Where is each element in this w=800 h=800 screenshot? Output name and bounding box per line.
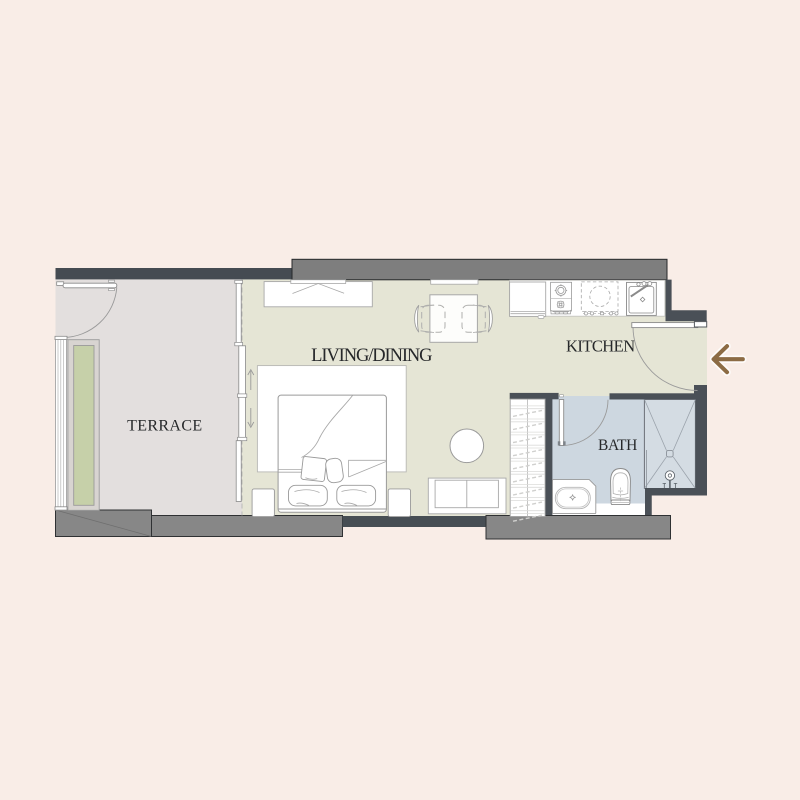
svg-text:LIVING/DINING: LIVING/DINING (311, 346, 432, 366)
svg-text:TERRACE: TERRACE (127, 418, 202, 435)
svg-text:BATH: BATH (598, 437, 637, 454)
svg-text:KITCHEN: KITCHEN (566, 337, 635, 356)
